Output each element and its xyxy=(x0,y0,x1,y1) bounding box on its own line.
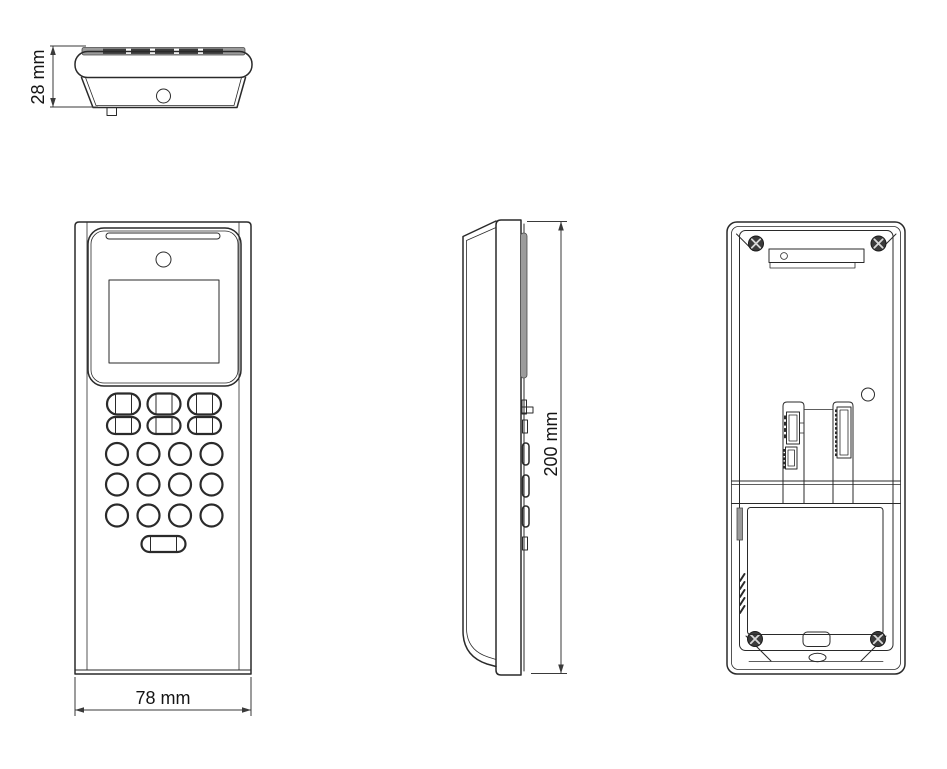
keypad-key xyxy=(138,474,160,496)
top-bottom-tab xyxy=(107,108,117,116)
screw-top-left xyxy=(749,236,764,251)
speaker-slot xyxy=(106,233,220,239)
side-front-face xyxy=(463,221,496,667)
back-view xyxy=(727,222,905,674)
top-body-cap xyxy=(75,52,252,78)
width-dimension-label: 78 mm xyxy=(75,688,251,708)
cable-hole xyxy=(862,388,875,401)
connector-right xyxy=(835,407,851,458)
screw-bottom-left xyxy=(748,632,763,647)
side-mount-strip xyxy=(521,233,528,378)
keypad-key xyxy=(107,394,140,415)
back-mounting-plate xyxy=(740,231,894,651)
keypad-key xyxy=(107,417,140,434)
top-view xyxy=(75,48,252,116)
front-body-outline xyxy=(75,222,251,674)
keypad xyxy=(106,394,223,553)
top-sensor-hole xyxy=(157,89,171,103)
camera-lens xyxy=(156,252,171,267)
bottom-oval-hole xyxy=(809,653,826,661)
keypad-key xyxy=(201,474,223,496)
keypad-key xyxy=(106,505,128,527)
keypad-key xyxy=(169,505,191,527)
connector-left-lower xyxy=(784,447,798,469)
keypad-key xyxy=(148,417,181,434)
bar-screw xyxy=(781,253,788,260)
connector-recess xyxy=(783,402,853,503)
vent-slots xyxy=(740,574,745,613)
back-lower-panel xyxy=(748,508,884,635)
screw-bottom-right xyxy=(871,632,886,647)
keypad-key xyxy=(106,474,128,496)
keypad-key xyxy=(188,394,221,415)
keypad-key xyxy=(169,443,191,465)
keypad-key xyxy=(188,417,221,434)
keypad-key xyxy=(138,443,160,465)
height-dimension-label: 200 mm xyxy=(511,404,591,484)
keypad-key xyxy=(201,505,223,527)
side-slot xyxy=(737,508,743,540)
technical-drawing-canvas: 28 mm 78 mm 200 mm xyxy=(0,0,947,769)
mounting-bar xyxy=(769,249,864,268)
keypad-key xyxy=(138,505,160,527)
keypad-key xyxy=(106,443,128,465)
keypad-key xyxy=(169,474,191,496)
back-outline xyxy=(727,222,905,674)
front-view xyxy=(75,222,251,674)
connector-left-upper xyxy=(784,412,804,444)
screw-top-right xyxy=(871,236,886,251)
back-band xyxy=(732,481,901,504)
display-screen xyxy=(109,280,219,363)
keypad-bottom-key xyxy=(142,536,186,552)
keypad-key xyxy=(148,394,181,415)
keypad-key xyxy=(201,443,223,465)
depth-dimension-label: 28 mm xyxy=(13,52,63,102)
line-art xyxy=(0,0,947,769)
